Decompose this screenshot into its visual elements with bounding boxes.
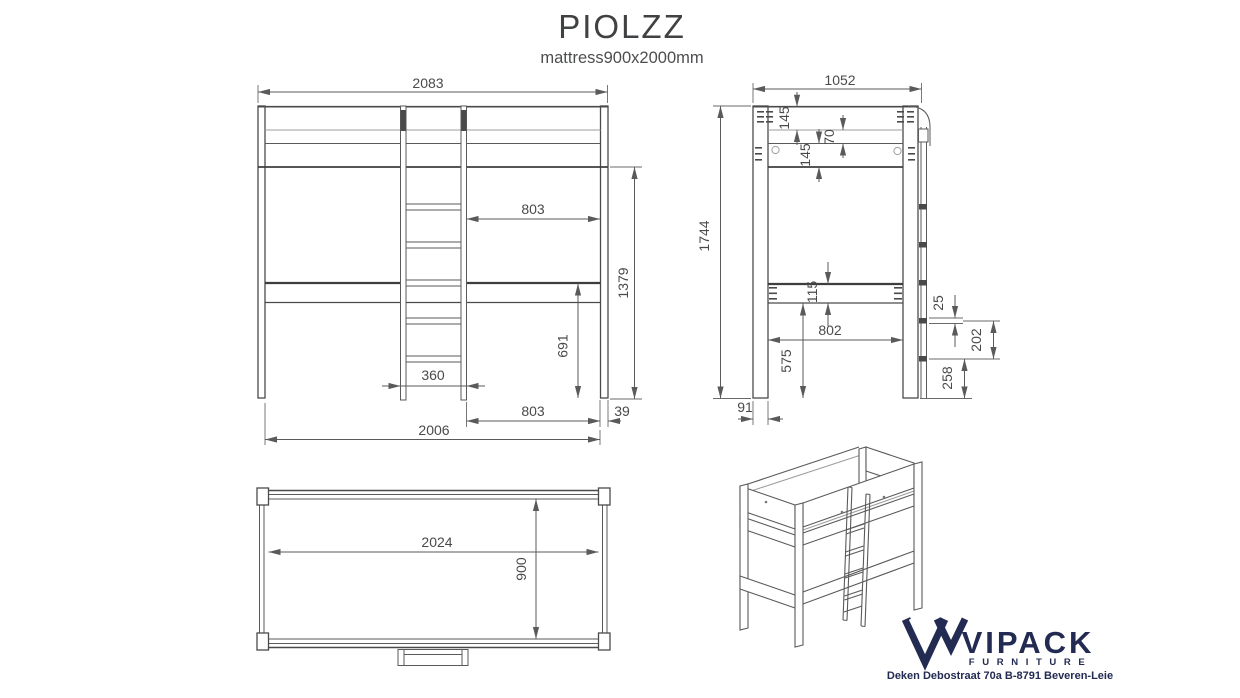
title-block: PIOLZZ mattress900x2000mm — [540, 8, 703, 67]
dim-side-bottom-rung-height: 258 — [939, 366, 955, 390]
iso-post-right — [914, 462, 922, 610]
dim-plan-inner-length: 2024 — [421, 534, 452, 550]
dim-plan-inner-width: 900 — [513, 557, 529, 581]
brand-division: F U R N I T U R E — [969, 657, 1088, 668]
iso-post-front — [795, 503, 803, 647]
corner-post-bottom-left — [257, 633, 269, 650]
vipack-logo-mark — [906, 619, 965, 660]
drawing-title: PIOLZZ — [558, 8, 686, 45]
dim-side-overall-depth: 1052 — [824, 72, 855, 88]
dim-side-rail-gap: 70 — [821, 129, 837, 145]
ladder-hook-right — [461, 110, 466, 131]
ladder-bracket — [919, 129, 929, 142]
side-right-post — [903, 106, 918, 398]
corner-post-bottom-right — [599, 633, 611, 650]
plan-ladder-tab — [398, 650, 468, 666]
front-elevation-view: 2083 803 1379 691 360 803 39 2006 — [258, 75, 642, 445]
side-left-post — [753, 106, 768, 398]
technical-drawing-page: PIOLZZ mattress900x2000mm 208 — [0, 0, 1240, 698]
corner-post-top-left — [257, 488, 269, 505]
dim-side-rung-thickness: 25 — [930, 295, 946, 311]
dim-front-overall-width: 2083 — [412, 75, 443, 91]
isometric-view — [740, 447, 922, 647]
dim-front-post-thickness: 39 — [614, 403, 630, 419]
dim-side-under-clearance: 575 — [778, 349, 794, 373]
side-elevation-view: 1052 145 70 145 1744 115 802 575 25 — [696, 72, 1000, 425]
dim-side-inner-depth: 802 — [818, 322, 842, 338]
dim-side-post-depth: 91 — [737, 399, 753, 415]
dim-side-lower-rail-height: 145 — [797, 143, 813, 167]
dim-front-overall-floor-width: 2006 — [418, 422, 449, 438]
dim-side-overall-height: 1744 — [696, 220, 712, 251]
dim-front-shelf-to-floor: 691 — [555, 334, 571, 358]
dim-side-top-rail-height: 145 — [776, 106, 792, 130]
brand-name: VIPACK — [962, 625, 1095, 660]
dim-front-underbed-height: 1379 — [615, 267, 631, 298]
dim-front-upper-clear-span: 803 — [521, 201, 545, 217]
brand-address: Deken Debostraat 70a B-8791 Beveren-Leie — [887, 670, 1113, 682]
iso-post-left — [740, 484, 748, 630]
vipack-logo: VIPACK F U R N I T U R E Deken Debostraa… — [887, 619, 1113, 682]
corner-post-top-right — [599, 488, 611, 505]
dim-front-lower-clear-span: 803 — [521, 403, 545, 419]
dim-side-platform-thickness: 115 — [804, 281, 820, 304]
front-ladder — [401, 106, 467, 400]
mattress-size-subtitle: mattress900x2000mm — [540, 49, 703, 67]
front-right-post — [601, 106, 609, 398]
dim-front-ladder-width: 360 — [421, 367, 445, 383]
plan-view: 2024 900 — [257, 488, 610, 666]
ladder-hook-left — [401, 110, 406, 131]
front-left-post — [258, 106, 265, 398]
dim-side-rung-spacing: 202 — [968, 328, 984, 352]
drawing-canvas: PIOLZZ mattress900x2000mm 208 — [0, 0, 1240, 698]
